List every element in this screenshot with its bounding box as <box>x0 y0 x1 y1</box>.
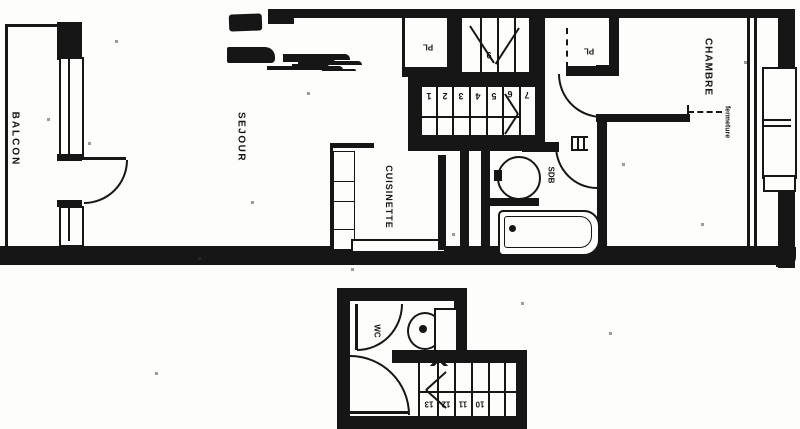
wall-closet-right <box>609 11 619 76</box>
stair-number: 2 <box>442 91 447 101</box>
wall-sdb-partition <box>489 198 539 206</box>
stair-tread-divider <box>486 87 488 135</box>
stair-number: 11 <box>459 400 467 409</box>
window-sill-box <box>763 175 796 192</box>
washbasin <box>497 156 541 200</box>
room-label-chambre: CHAMBRE <box>703 38 714 96</box>
wall-bottom <box>337 416 527 429</box>
toilet-drain <box>419 325 427 333</box>
wall-kitchenette-right <box>438 155 446 250</box>
stair-tread-divider <box>418 363 420 416</box>
wall-kitchenette-top <box>330 143 374 148</box>
stair-tread-divider <box>504 363 506 416</box>
room-label-cuisinette: CUISINETTE <box>384 165 394 229</box>
window-mullion <box>68 59 70 154</box>
room-label-sdb: SDB <box>547 167 556 184</box>
wall-top <box>337 288 467 301</box>
wall-inner-line <box>754 17 757 254</box>
kitchen-unit <box>333 201 355 231</box>
window-mullion <box>68 208 70 241</box>
wall-mid <box>392 350 525 363</box>
wall-top-end-cap <box>268 9 294 24</box>
wall-closet-left <box>402 17 405 72</box>
stair-section-cut-mark <box>424 352 454 366</box>
fermeture-dashed-line <box>688 111 722 113</box>
stair-number: 10 <box>476 400 485 409</box>
stair-tread-divider <box>452 87 454 135</box>
balcony-rail-top <box>5 24 59 27</box>
stair-number: 12 <box>442 400 451 409</box>
floor-plan: BALCON SEJOUR CUISINETTE PL <box>0 0 800 429</box>
bathtub-faucet <box>509 225 516 232</box>
stair-number: 7 <box>524 90 529 100</box>
kitchen-counter-bottom <box>351 239 446 253</box>
stair-number: 1 <box>426 91 431 101</box>
door-arc-balcony <box>84 160 128 204</box>
wall-flight-top <box>408 72 545 87</box>
wall-sdb-top <box>522 142 559 152</box>
wall-facade-solid <box>57 22 82 60</box>
closet-label-pl-right: PL <box>584 47 594 56</box>
stair-tread-divider <box>514 17 516 72</box>
stair-tread-divider <box>454 363 456 416</box>
kitchen-unit <box>333 181 355 203</box>
wall-duct <box>460 147 469 250</box>
room-label-balcon: BALCON <box>10 112 21 167</box>
window-mullion <box>764 119 791 121</box>
scan-noise <box>0 0 3 3</box>
scan-smudge <box>227 47 275 63</box>
room-label-wc: WC <box>373 324 382 337</box>
wall-left <box>337 288 350 420</box>
stair-mid-line <box>422 116 521 118</box>
washbasin-tap <box>494 170 502 181</box>
stair-tread-divider <box>436 87 438 135</box>
stair-tread-divider <box>497 17 499 72</box>
scan-smudge <box>229 13 263 31</box>
wall-stairs-right <box>516 350 527 429</box>
stair-number: 3 <box>458 91 463 101</box>
wall-stairwell-right <box>529 12 545 76</box>
balcony-rail-left <box>5 24 8 248</box>
stair-number: 5 <box>491 91 496 101</box>
wall-chambre-partial <box>596 114 690 122</box>
toilet-cistern <box>434 308 458 352</box>
wall-right-upper <box>778 9 795 72</box>
window-facade-lower <box>59 206 84 247</box>
room-label-sejour: SEJOUR <box>236 112 247 162</box>
door-leaf-entry <box>350 411 408 414</box>
stair-number: 13 <box>425 400 434 409</box>
closet-label-pl-left: PL <box>423 43 433 52</box>
door-arc-sdb <box>555 146 597 189</box>
closet-door-dashed <box>566 28 568 68</box>
stair-number: 9 <box>486 50 491 60</box>
window-mullion <box>764 125 791 127</box>
stair-mid-line <box>420 391 517 393</box>
wall-inner-line <box>747 17 750 254</box>
window-facade-upper <box>59 57 84 160</box>
annotation-fermeture: fermeture <box>724 106 731 138</box>
stair-tread-divider <box>519 87 521 135</box>
stair-tread-divider <box>437 363 439 416</box>
stair-tread-divider <box>471 363 473 416</box>
window-chambre <box>762 67 797 179</box>
stair-tread-divider <box>488 363 490 416</box>
door-arc-entry <box>350 355 410 415</box>
wall-flight-right <box>535 72 545 151</box>
wall-stairwell-left <box>447 13 462 77</box>
wall-sill <box>57 154 82 161</box>
bathtub-inner <box>504 216 592 248</box>
kitchen-unit <box>333 151 355 183</box>
stair-number: 4 <box>475 91 480 101</box>
door-arc-chambre <box>558 74 602 118</box>
stair-tread-divider <box>469 87 471 135</box>
